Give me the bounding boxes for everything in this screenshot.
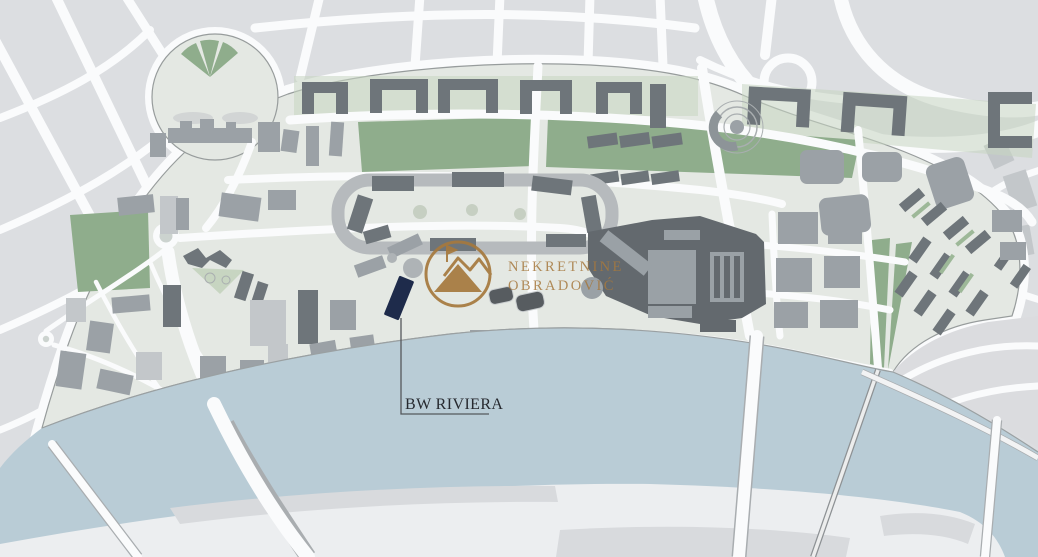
west-park-square [70, 210, 150, 292]
riviera-label[interactable]: BW RIVIERA [405, 396, 503, 413]
central-park-west [358, 117, 534, 172]
map-viewport[interactable]: BW RIVIERA NEKRETNINE OBRADOVIĆ [0, 0, 1038, 557]
logo-line2: OBRADOVIĆ [508, 277, 616, 294]
site-map[interactable]: BW RIVIERA NEKRETNINE OBRADOVIĆ [0, 0, 1038, 557]
logo-line1: NEKRETNINE [508, 259, 624, 275]
